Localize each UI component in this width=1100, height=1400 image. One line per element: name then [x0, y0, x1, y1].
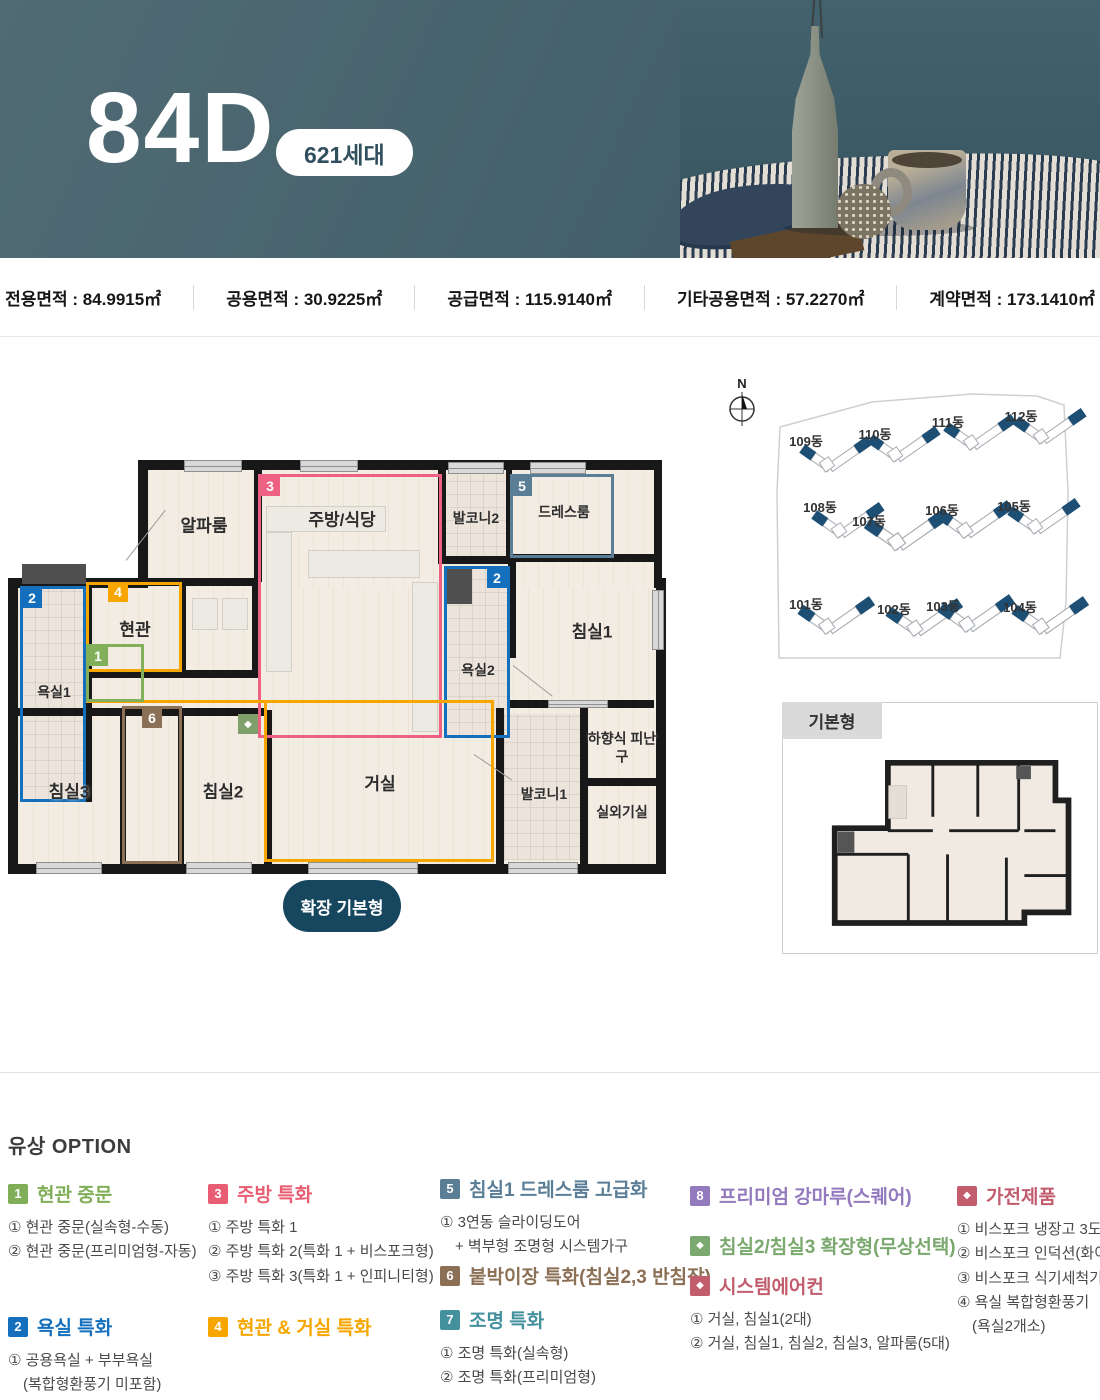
- option-badge-1: 1: [8, 1184, 28, 1204]
- household-count-badge: 621세대: [276, 129, 413, 176]
- option-name: 프리미엄 강마루(스퀘어): [719, 1182, 912, 1209]
- room-label-outdoor: 실외기실: [596, 802, 648, 822]
- option-item: ① 3연동 슬라이딩도어: [440, 1211, 670, 1235]
- window: [186, 862, 252, 874]
- option-badge-diamond: ◆: [957, 1186, 977, 1206]
- option-badge-4: 4: [208, 1317, 228, 1337]
- header-photo: [680, 0, 1100, 258]
- option-name: 시스템에어컨: [719, 1272, 824, 1299]
- option-group-8: 8 프리미엄 강마루(스퀘어): [690, 1182, 920, 1209]
- option-badge-diamond: ◆: [690, 1276, 710, 1296]
- window: [308, 862, 418, 874]
- floor-plan: 3 5 2 2 4 1 6 ◆ 알파룸 주방/식당 발코니2 드레스룸 침실1 …: [8, 460, 668, 874]
- building-label: 109동: [789, 434, 823, 449]
- option-item: ④ 욕실 복합형환풍기: [957, 1291, 1100, 1315]
- room-label-kitchen: 주방/식당: [308, 506, 375, 531]
- building-label: 112동: [1005, 409, 1038, 424]
- badge-6-closet: 6: [142, 708, 162, 728]
- option-item: ① 현관 중문(실속형-수동): [8, 1216, 238, 1240]
- area-contract: 계약면적 : 173.1410㎡: [896, 285, 1100, 310]
- compass-n-label: N: [737, 376, 746, 391]
- window: [448, 462, 504, 474]
- expand-basic-type-button[interactable]: 확장 기본형: [283, 880, 401, 932]
- basic-type-tab: 기본형: [782, 702, 882, 739]
- basic-type-mini-plan: [810, 753, 1072, 941]
- page: 84D 621세대 전용면적 : 84.9915㎡ 공용면적 : 30.9225…: [0, 0, 1100, 1400]
- building-label: 107동: [852, 514, 886, 529]
- option-item: ② 거실, 침실1, 침실2, 침실3, 알파룸(5대): [690, 1332, 920, 1356]
- options-title: 유상 OPTION: [8, 1130, 132, 1159]
- window: [508, 862, 578, 874]
- option-group-2: 2 욕실 특화 ① 공용욕실 + 부부욕실 (복합형환풍기 미포함): [8, 1313, 238, 1398]
- badge-3-kitchen: 3: [260, 476, 280, 496]
- badge-2-bath1: 2: [22, 588, 42, 608]
- option-badge-2: 2: [8, 1317, 28, 1337]
- option-name: 주방 특화: [237, 1180, 312, 1207]
- option-item: ① 비스포크 냉장고 3도어: [957, 1218, 1100, 1242]
- window: [530, 462, 586, 474]
- textured-sphere: [836, 184, 891, 239]
- room-label-balcony2: 발코니2: [453, 508, 499, 528]
- room-label-alpha: 알파룸: [181, 512, 228, 537]
- ceramic-mug: [888, 150, 966, 230]
- window: [652, 590, 664, 650]
- option-item: ③ 주방 특화 3(특화 1 + 인피니티형): [208, 1265, 438, 1289]
- option-name: 현관 중문: [37, 1180, 112, 1207]
- option-badge-7: 7: [440, 1310, 460, 1330]
- option-badge-6: 6: [440, 1266, 460, 1286]
- unit-type-title: 84D: [86, 78, 275, 178]
- area-exclusive: 전용면적 : 84.9915㎡: [0, 285, 193, 310]
- room-label-bath1: 욕실1: [37, 682, 71, 702]
- option-item: ① 조명 특화(실속형): [440, 1342, 670, 1366]
- building-label: 111동: [932, 415, 964, 430]
- room-label-bed2: 침실2: [203, 778, 244, 803]
- option-item: + 벽부형 조명형 시스템가구: [440, 1235, 670, 1259]
- building-label: 101동: [789, 597, 823, 612]
- option-group-1: 1 현관 중문 ① 현관 중문(실속형-수동) ② 현관 중문(프리미엄형-자동…: [8, 1180, 238, 1265]
- area-info-bar: 전용면적 : 84.9915㎡ 공용면적 : 30.9225㎡ 공급면적 : 1…: [0, 258, 1100, 337]
- room-label-escape: 하향식 피난구: [586, 731, 658, 766]
- option-item: (욕실2개소): [957, 1315, 1100, 1339]
- closet-option-outline: [122, 706, 182, 864]
- area-supply: 공급면적 : 115.9140㎡: [414, 285, 644, 310]
- building-label: 102동: [877, 602, 911, 617]
- option-group-3: 3 주방 특화 ① 주방 특화 1 ② 주방 특화 2(특화 1 + 비스포크형…: [208, 1180, 438, 1289]
- room-label-bath2: 욕실2: [461, 660, 495, 680]
- option-item: ② 조명 특화(프리미엄형): [440, 1366, 670, 1390]
- compass-icon: N: [730, 376, 754, 426]
- option-item: (복합형환풍기 미포함): [8, 1373, 238, 1397]
- room-label-living: 거실: [364, 770, 395, 795]
- option-badge-diamond: ◆: [690, 1236, 710, 1256]
- badge-5-dressroom: 5: [512, 476, 532, 496]
- wall-segment: [438, 556, 514, 564]
- building-label: 103동: [926, 599, 960, 614]
- elevator-door: [192, 598, 218, 630]
- window: [548, 700, 608, 708]
- wall-segment: [588, 778, 658, 786]
- room-label-entrance: 현관: [119, 616, 150, 641]
- option-group-5: 5 침실1 드레스룸 고급화 ① 3연동 슬라이딩도어 + 벽부형 조명형 시스…: [440, 1175, 670, 1260]
- room-label-bed3: 침실3: [49, 778, 90, 803]
- building-label: 108동: [803, 500, 837, 515]
- option-name: 가전제품: [986, 1182, 1056, 1209]
- option-group-6: 6 붙박이장 특화(침실2,3 반침장): [440, 1262, 670, 1289]
- building-label: 104동: [1003, 600, 1037, 615]
- option-item: ③ 비스포크 식기세척기: [957, 1267, 1100, 1291]
- section-divider: [0, 1072, 1100, 1073]
- room-label-bed1: 침실1: [572, 618, 613, 643]
- header-banner: 84D 621세대: [0, 0, 1100, 258]
- basic-type-box: 기본형: [782, 702, 1098, 954]
- dried-stem: [819, 0, 823, 38]
- option-name: 침실2/침실3 확장형(무상선택): [719, 1232, 956, 1259]
- option-group-7: 7 조명 특화 ① 조명 특화(실속형) ② 조명 특화(프리미엄형): [440, 1306, 670, 1391]
- option-group-4: 4 현관 & 거실 특화: [208, 1313, 438, 1340]
- area-common: 공용면적 : 30.9225㎡: [193, 285, 414, 310]
- building-label: 105동: [997, 499, 1031, 514]
- option-item: ① 주방 특화 1: [208, 1216, 438, 1240]
- option-item: ① 거실, 침실1(2대): [690, 1308, 920, 1332]
- badge-4-entrance: 4: [108, 582, 128, 602]
- area-other-common: 기타공용면적 : 57.2270㎡: [644, 285, 896, 310]
- window: [184, 460, 242, 472]
- option-name: 조명 특화: [469, 1306, 544, 1333]
- option-badge-5: 5: [440, 1179, 460, 1199]
- option-name: 침실1 드레스룸 고급화: [469, 1175, 647, 1202]
- room-label-balcony1: 발코니1: [521, 784, 567, 804]
- option-name: 욕실 특화: [37, 1313, 112, 1340]
- building-label: 110동: [859, 427, 892, 442]
- option-item: ② 주방 특화 2(특화 1 + 비스포크형): [208, 1240, 438, 1264]
- option-item: ① 공용욕실 + 부부욕실: [8, 1349, 238, 1373]
- room-label-dress: 드레스룸: [538, 502, 590, 522]
- window: [300, 460, 358, 472]
- vase-bottle: [792, 26, 838, 228]
- option-name: 현관 & 거실 특화: [237, 1313, 371, 1340]
- option-badge-8: 8: [690, 1186, 710, 1206]
- window: [36, 862, 102, 874]
- option-group-9: ◆ 침실2/침실3 확장형(무상선택): [690, 1232, 920, 1259]
- option-group-10: ◆ 시스템에어컨 ① 거실, 침실1(2대) ② 거실, 침실1, 침실2, 침…: [690, 1272, 920, 1357]
- badge-diamond-bed2: ◆: [238, 714, 258, 734]
- option-badge-3: 3: [208, 1184, 228, 1204]
- option-group-11: ◆ 가전제품 ① 비스포크 냉장고 3도어 ② 비스포크 인덕션(화이트) ③ …: [957, 1182, 1100, 1339]
- utility-block: [22, 564, 86, 584]
- option-name: 붙박이장 특화(침실2,3 반침장): [469, 1262, 711, 1289]
- elevator-door: [222, 598, 248, 630]
- building-label: 106동: [925, 503, 959, 518]
- site-plan: N 109동 110동 111동 112동 108동 107동 106동 105…: [722, 372, 1100, 684]
- badge-1-door: 1: [88, 646, 108, 666]
- badge-2-bath2: 2: [487, 568, 507, 588]
- option-item: ② 현관 중문(프리미엄형-자동): [8, 1240, 238, 1264]
- option-item: ② 비스포크 인덕션(화이트): [957, 1242, 1100, 1266]
